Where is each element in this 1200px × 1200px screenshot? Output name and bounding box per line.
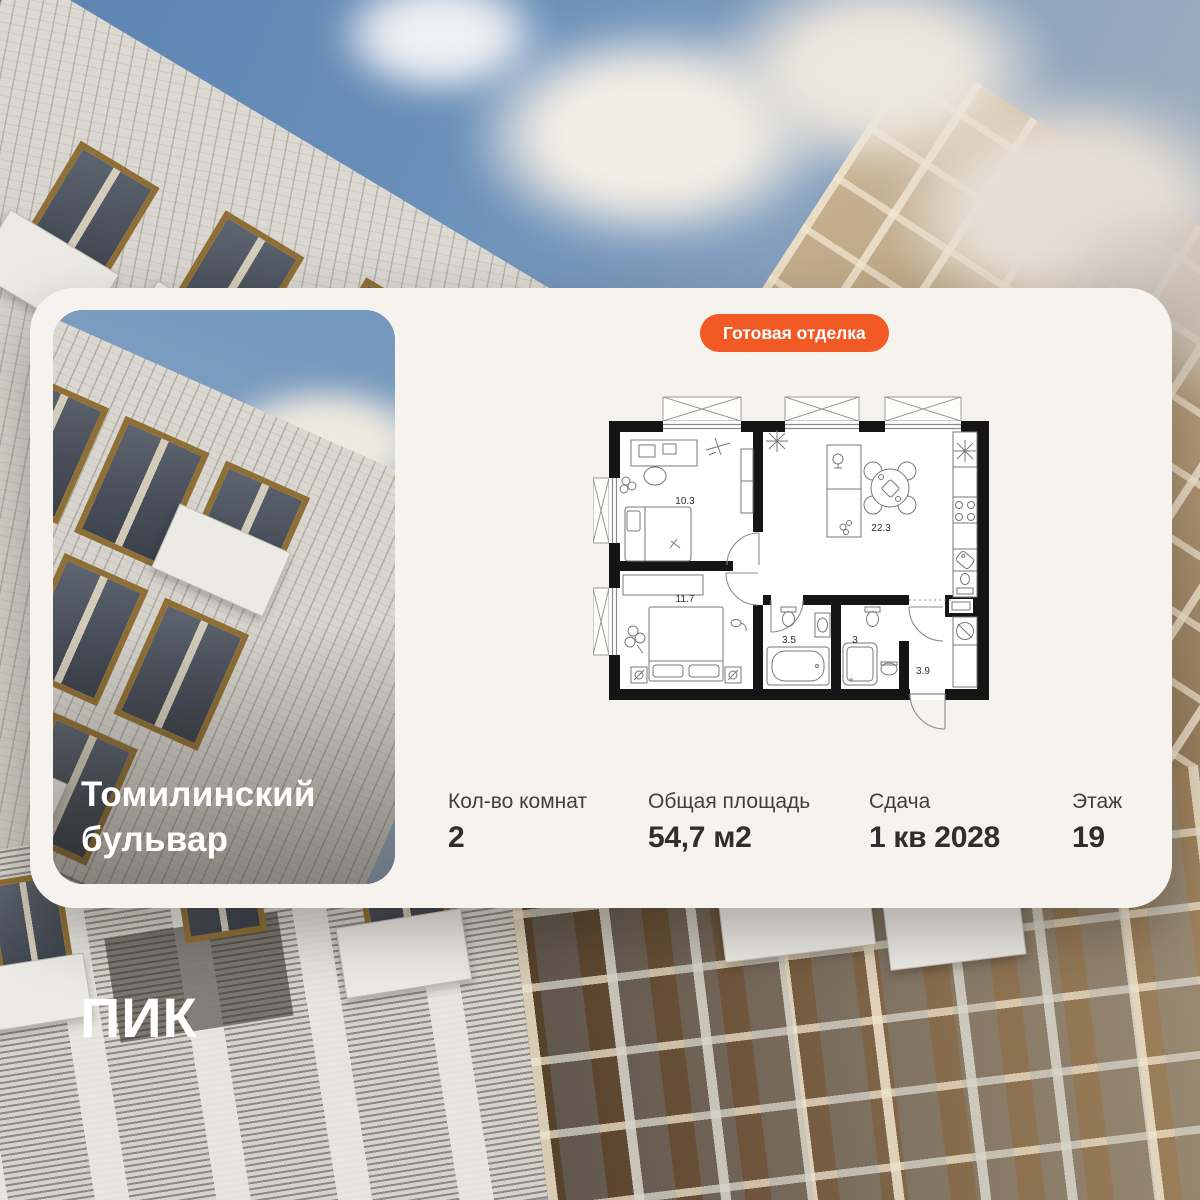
balcony xyxy=(335,908,472,999)
stat-rooms-label: Кол-во комнат xyxy=(448,790,587,814)
stat-area: Общая площадь 54,7 м2 xyxy=(648,790,810,855)
room-label-children: 10.3 xyxy=(675,496,695,507)
finish-badge: Готовая отделка xyxy=(700,314,889,352)
hall-cabinet xyxy=(953,645,977,687)
stat-floor-value: 19 xyxy=(1072,821,1122,855)
stat-area-value: 54,7 м2 xyxy=(648,821,810,855)
room-label-living: 22.3 xyxy=(871,523,891,534)
room-label-bathroom: 3.5 xyxy=(782,635,796,646)
listing-card[interactable]: Томилинский бульвар Готовая отделка xyxy=(30,288,1172,908)
room-label-wc: 3 xyxy=(852,635,858,646)
floor-plan: 10.3 22.3 11.7 3.5 3 3.9 xyxy=(593,393,993,743)
project-name: Томилинский бульвар xyxy=(81,772,316,862)
room-label-bedroom: 11.7 xyxy=(676,594,695,605)
kitchen-counter xyxy=(953,432,977,687)
stat-area-label: Общая площадь xyxy=(648,790,810,814)
project-name-line1: Томилинский xyxy=(81,772,316,817)
stat-rooms: Кол-во комнат 2 xyxy=(448,790,587,855)
room-label-hallway: 3.9 xyxy=(916,666,930,677)
washer-icon xyxy=(953,617,977,645)
advert-banner: Томилинский бульвар Готовая отделка xyxy=(0,0,1200,1200)
stat-floor: Этаж 19 xyxy=(1072,790,1122,855)
stat-completion: Сдача 1 кв 2028 xyxy=(869,790,1000,855)
stat-completion-label: Сдача xyxy=(869,790,1000,814)
pik-logo: ПИК xyxy=(80,985,198,1050)
stat-floor-label: Этаж xyxy=(1072,790,1122,814)
stat-rooms-value: 2 xyxy=(448,821,587,855)
fridge-icon xyxy=(954,440,976,462)
project-name-line2: бульвар xyxy=(81,817,316,862)
project-photo-card: Томилинский бульвар xyxy=(53,310,395,884)
stat-completion-value: 1 кв 2028 xyxy=(869,821,1000,855)
